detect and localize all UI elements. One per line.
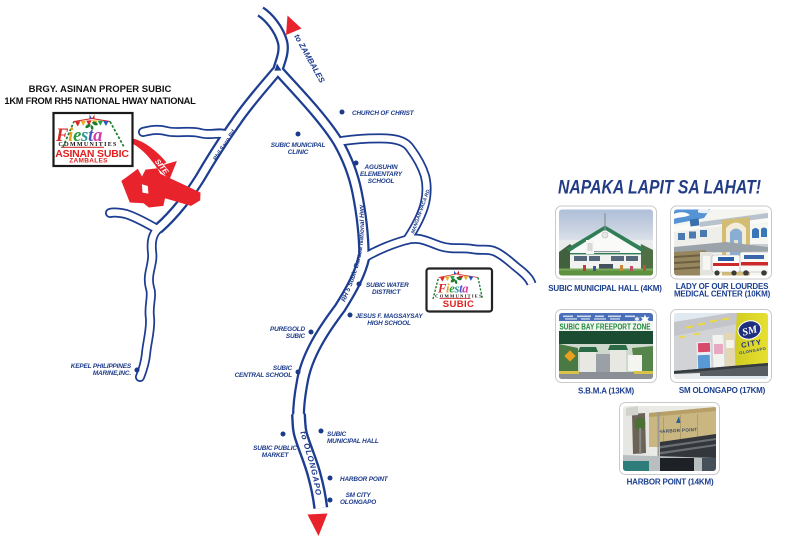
svg-text:S.B.M.A (13KM): S.B.M.A (13KM) <box>578 387 635 396</box>
svg-text:HARBOR POINT: HARBOR POINT <box>340 476 389 483</box>
svg-text:CENTRAL SCHOOL: CENTRAL SCHOOL <box>235 372 293 379</box>
svg-text:SUBIC PUBLIC: SUBIC PUBLIC <box>253 445 297 452</box>
svg-text:SM CITY: SM CITY <box>346 492 372 499</box>
svg-text:SUBIC: SUBIC <box>443 299 475 310</box>
svg-text:SUBIC BAY FREEPORT ZONE: SUBIC BAY FREEPORT ZONE <box>560 323 652 332</box>
svg-text:MEDICAL CENTER (10KM): MEDICAL CENTER (10KM) <box>674 290 771 299</box>
svg-text:BRGY. ASINAN PROPER SUBIC: BRGY. ASINAN PROPER SUBIC <box>29 84 172 95</box>
svg-text:KEPEL PHILIPPINES: KEPEL PHILIPPINES <box>71 363 132 370</box>
svg-text:SUBIC: SUBIC <box>327 431 347 438</box>
svg-text:HARBOR POINT (14KM): HARBOR POINT (14KM) <box>627 478 714 487</box>
svg-text:AGUSUHIN: AGUSUHIN <box>364 164 398 171</box>
svg-text:JESUS F. MAGSAYSAY: JESUS F. MAGSAYSAY <box>355 313 423 320</box>
svg-text:NAPAKA LAPIT SA LAHAT!: NAPAKA LAPIT SA LAHAT! <box>558 177 761 199</box>
svg-text:HIGH SCHOOL: HIGH SCHOOL <box>367 320 411 327</box>
svg-text:ZAMBALES: ZAMBALES <box>69 158 108 165</box>
svg-text:MARKET: MARKET <box>262 452 290 459</box>
svg-text:SUBIC MUNICIPAL: SUBIC MUNICIPAL <box>271 142 326 149</box>
svg-text:DISTRICT: DISTRICT <box>372 289 402 296</box>
svg-text:CLINIC: CLINIC <box>288 149 309 156</box>
svg-text:SCHOOL: SCHOOL <box>368 178 395 185</box>
svg-text:PUREGOLD: PUREGOLD <box>270 326 306 333</box>
svg-text:SUBIC: SUBIC <box>286 333 306 340</box>
svg-text:MARINE,INC.: MARINE,INC. <box>93 370 131 377</box>
svg-text:OLONGAPO: OLONGAPO <box>340 499 376 506</box>
svg-text:SM OLONGAPO (17KM): SM OLONGAPO (17KM) <box>679 386 766 395</box>
svg-text:1KM FROM RH5 NATIONAL HWAY NAT: 1KM FROM RH5 NATIONAL HWAY NATIONAL <box>4 96 196 106</box>
svg-text:SUBIC: SUBIC <box>273 365 293 372</box>
svg-text:COMMUNITIES: COMMUNITIES <box>435 293 483 298</box>
svg-text:SUBIC MUNICIPAL HALL (4KM): SUBIC MUNICIPAL HALL (4KM) <box>548 284 662 293</box>
svg-text:CHURCH OF CHRIST: CHURCH OF CHRIST <box>352 110 415 117</box>
svg-text:MUNICIPAL HALL: MUNICIPAL HALL <box>327 438 379 445</box>
svg-text:SUBIC WATER: SUBIC WATER <box>366 282 409 289</box>
svg-text:ELEMENTARY: ELEMENTARY <box>360 171 403 178</box>
